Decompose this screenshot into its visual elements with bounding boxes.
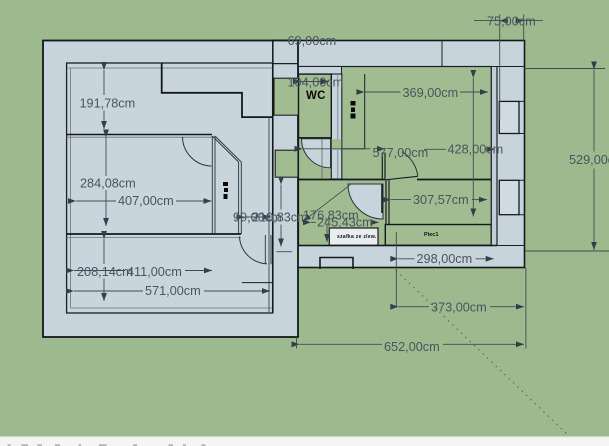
svg-text:373,00cm: 373,00cm [431, 301, 487, 315]
svg-text:szafka ze zlew.: szafka ze zlew. [337, 234, 377, 240]
svg-text:75,00cm: 75,00cm [487, 15, 536, 29]
svg-text:191,78cm: 191,78cm [80, 97, 136, 111]
svg-text:210,83cm: 210,83cm [252, 211, 308, 225]
svg-text:284,08cm: 284,08cm [80, 177, 136, 191]
svg-text:208,14cm: 208,14cm [77, 265, 133, 279]
svg-text:307,57cm: 307,57cm [413, 193, 469, 207]
svg-text:407,00cm: 407,00cm [118, 194, 174, 208]
svg-text:Piec1: Piec1 [424, 232, 438, 238]
svg-text:428,00cm: 428,00cm [448, 143, 504, 157]
svg-text:652,00cm: 652,00cm [384, 340, 440, 354]
svg-text:369,00cm: 369,00cm [403, 86, 459, 100]
svg-text:529,00cm: 529,00cm [569, 153, 609, 167]
svg-text:571,00cm: 571,00cm [145, 284, 201, 298]
svg-text:298,00cm: 298,00cm [417, 252, 473, 266]
svg-text:WC: WC [306, 90, 326, 102]
svg-text:245,43cm: 245,43cm [317, 215, 373, 229]
svg-text:104,00cm: 104,00cm [288, 76, 344, 90]
svg-text:411,00cm: 411,00cm [127, 265, 182, 279]
svg-text:69,00cm: 69,00cm [288, 34, 337, 48]
svg-text:577,00cm: 577,00cm [373, 146, 429, 160]
